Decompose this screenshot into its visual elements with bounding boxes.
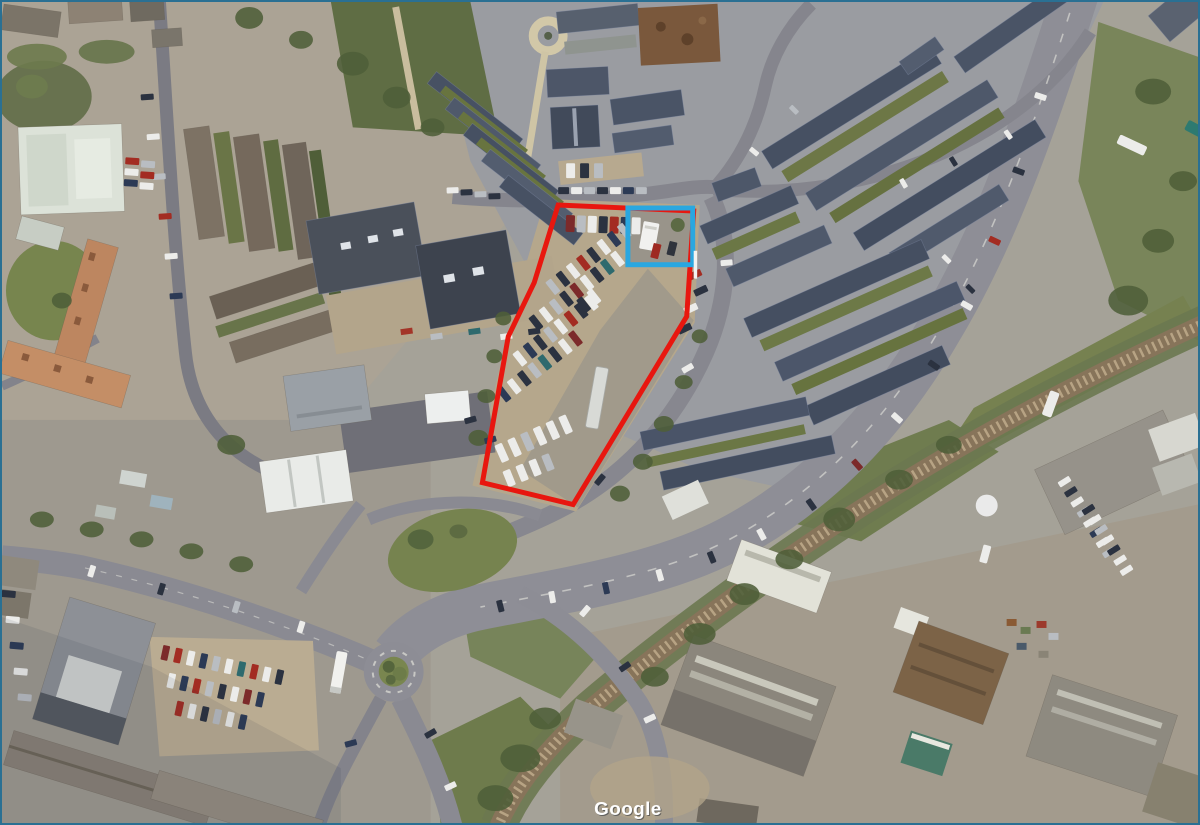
google-logo: Google [594, 799, 662, 820]
satellite-image: Google Google [2, 2, 1198, 823]
screenshot-frame: Google Google [0, 0, 1200, 825]
lamp-post-mark [694, 251, 697, 279]
google-watermark: Google Google [594, 799, 663, 821]
